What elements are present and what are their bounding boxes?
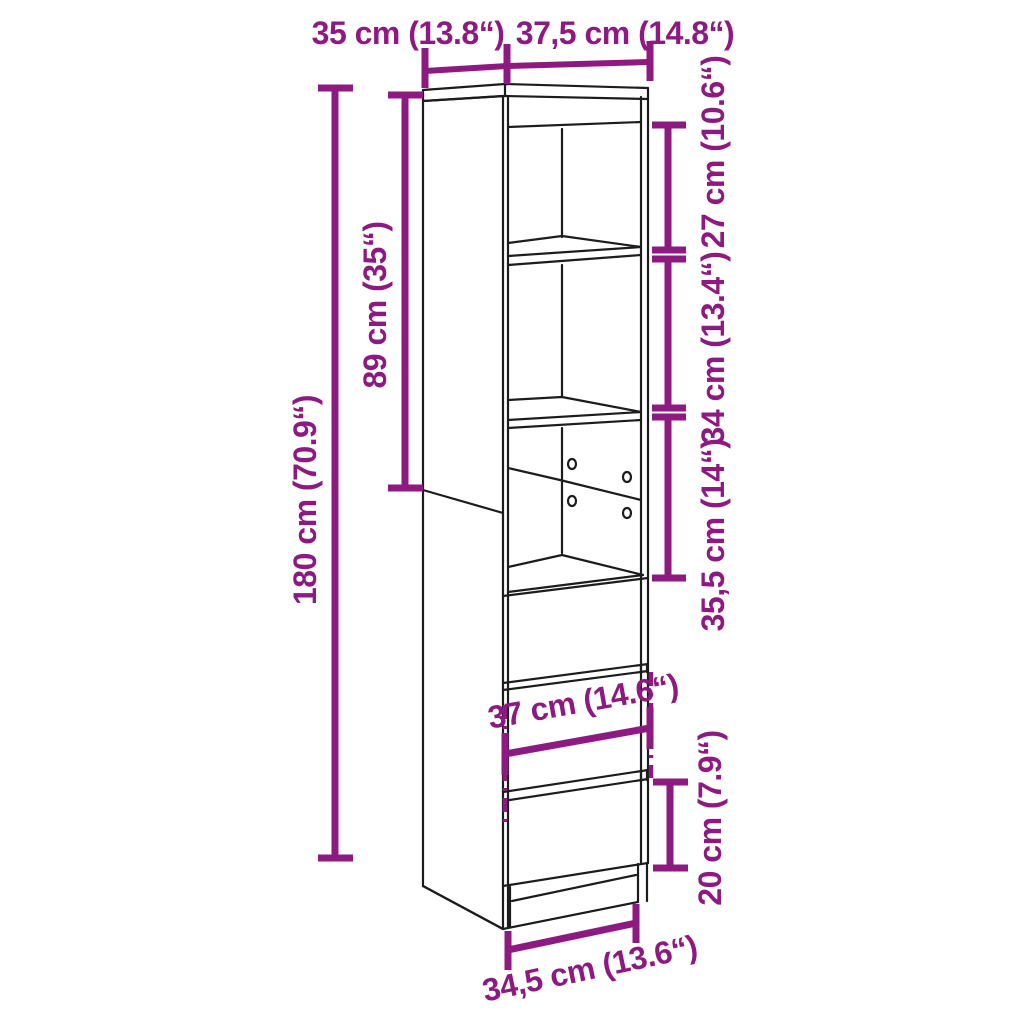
- diagram-canvas: 35 cm (13.8“) 37,5 cm (14.8“) 89 cm (35“…: [0, 0, 1024, 1024]
- dim-label-base-width: 34,5 cm (13.6“): [479, 928, 700, 1009]
- dim-label-upper-section-height: 89 cm (35“): [357, 221, 393, 388]
- dim-label-top-compartment: 27 cm (10.6“): [695, 56, 731, 249]
- cabinet-drawing: [423, 84, 648, 929]
- dim-label-total-height: 180 cm (70.9“): [287, 395, 323, 605]
- dim-line-upper-height: [388, 95, 423, 488]
- dim-label-middle-compartment: 34 cm (13.4“): [695, 252, 731, 445]
- dim-label-top-depth: 35 cm (13.8“): [312, 15, 505, 51]
- dim-label-top-width: 37,5 cm (14.8“): [516, 15, 734, 51]
- dim-line-bottom-drawer: [653, 782, 688, 868]
- dim-line-total-height: [318, 88, 353, 858]
- dim-label-lower-compartment: 35,5 cm (14“): [695, 439, 731, 632]
- product-dimension-diagram: 35 cm (13.8“) 37,5 cm (14.8“) 89 cm (35“…: [0, 0, 1024, 1024]
- dim-line-compartments: [652, 125, 686, 578]
- cabinet-body-fill: [423, 84, 648, 929]
- dim-label-bottom-drawer-height: 20 cm (7.9“): [692, 730, 728, 905]
